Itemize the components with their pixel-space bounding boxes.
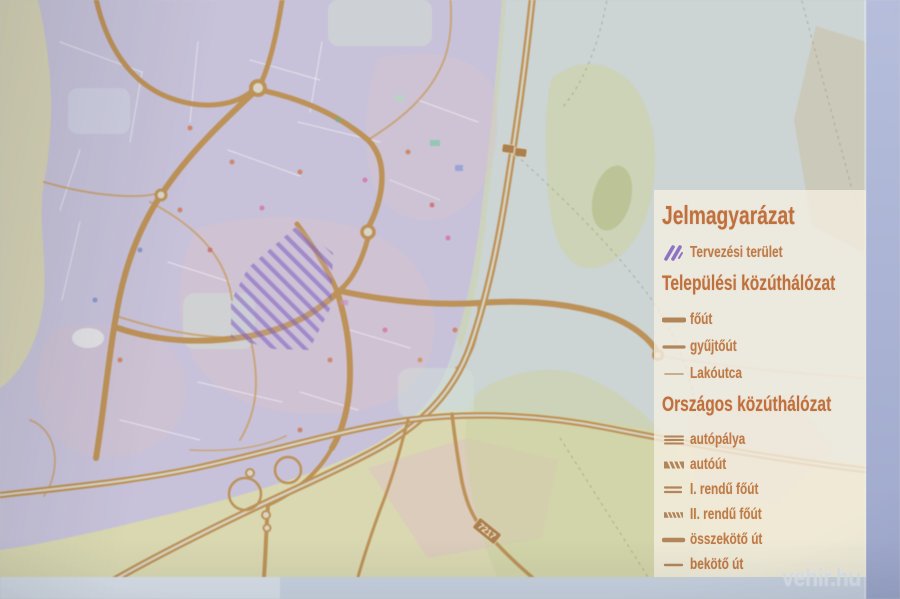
urban-tint bbox=[68, 88, 130, 134]
legend-item-label: Tervezési terület bbox=[690, 244, 783, 262]
legend-panel: Jelmagyarázat Tervezési terület Települé… bbox=[654, 190, 866, 577]
triple-line-icon bbox=[662, 433, 690, 447]
legend-item-label: összekötő út bbox=[690, 531, 762, 549]
stadium-oval bbox=[72, 328, 104, 348]
thick-line-icon bbox=[662, 533, 690, 547]
legend-item-label: gyűjtőút bbox=[690, 338, 737, 356]
legend-item-label: I. rendű főút bbox=[690, 481, 758, 499]
medium-line-icon bbox=[662, 558, 690, 572]
legend-item-label: főút bbox=[690, 311, 712, 329]
medium-line-icon bbox=[662, 340, 690, 354]
double-line-icon bbox=[662, 483, 690, 497]
legend-item-elso-rendu-fout: I. rendű főút bbox=[662, 477, 866, 502]
hatched-bar-icon bbox=[662, 458, 690, 472]
legend-item-autopalya: autópálya bbox=[662, 427, 866, 452]
legend-item-label: Lakóutca bbox=[690, 365, 742, 383]
legend-item-lakoutca: Lakóutca bbox=[662, 360, 866, 387]
hatched-double-line-icon bbox=[662, 508, 690, 522]
legend-item-osszekoto-ut: összekötő út bbox=[662, 527, 866, 552]
legend-item-label: autópálya bbox=[690, 431, 745, 449]
thick-line-icon bbox=[662, 313, 690, 327]
urban-tint bbox=[328, 0, 432, 46]
urban-tint bbox=[398, 368, 474, 418]
legend-item-gyujtout: gyűjtőút bbox=[662, 333, 866, 360]
legend-item-masod-rendu-fout: II. rendű főút bbox=[662, 502, 866, 527]
thin-line-icon bbox=[662, 367, 690, 381]
legend-item-autout: autóút bbox=[662, 452, 866, 477]
legend-item-label: autóút bbox=[690, 456, 726, 474]
projection-photo: 7217 bbox=[0, 0, 900, 599]
screen-right-edge bbox=[866, 0, 900, 599]
legend-item-label: bekötő út bbox=[690, 556, 743, 574]
purple-hatch-icon bbox=[662, 244, 690, 262]
legend-section-municipal-heading: Települési közúthálózat bbox=[662, 272, 866, 298]
legend-item-planning-area: Tervezési terület bbox=[662, 240, 866, 266]
legend-title: Jelmagyarázat bbox=[662, 200, 866, 232]
screen-bottom-highlight bbox=[0, 577, 280, 599]
legend-section-national-heading: Országos közúthálózat bbox=[662, 393, 866, 419]
legend-item-label: II. rendű főút bbox=[690, 506, 762, 524]
vehir-watermark: vehir.hu bbox=[782, 564, 874, 593]
legend-item-fout: főút bbox=[662, 306, 866, 333]
